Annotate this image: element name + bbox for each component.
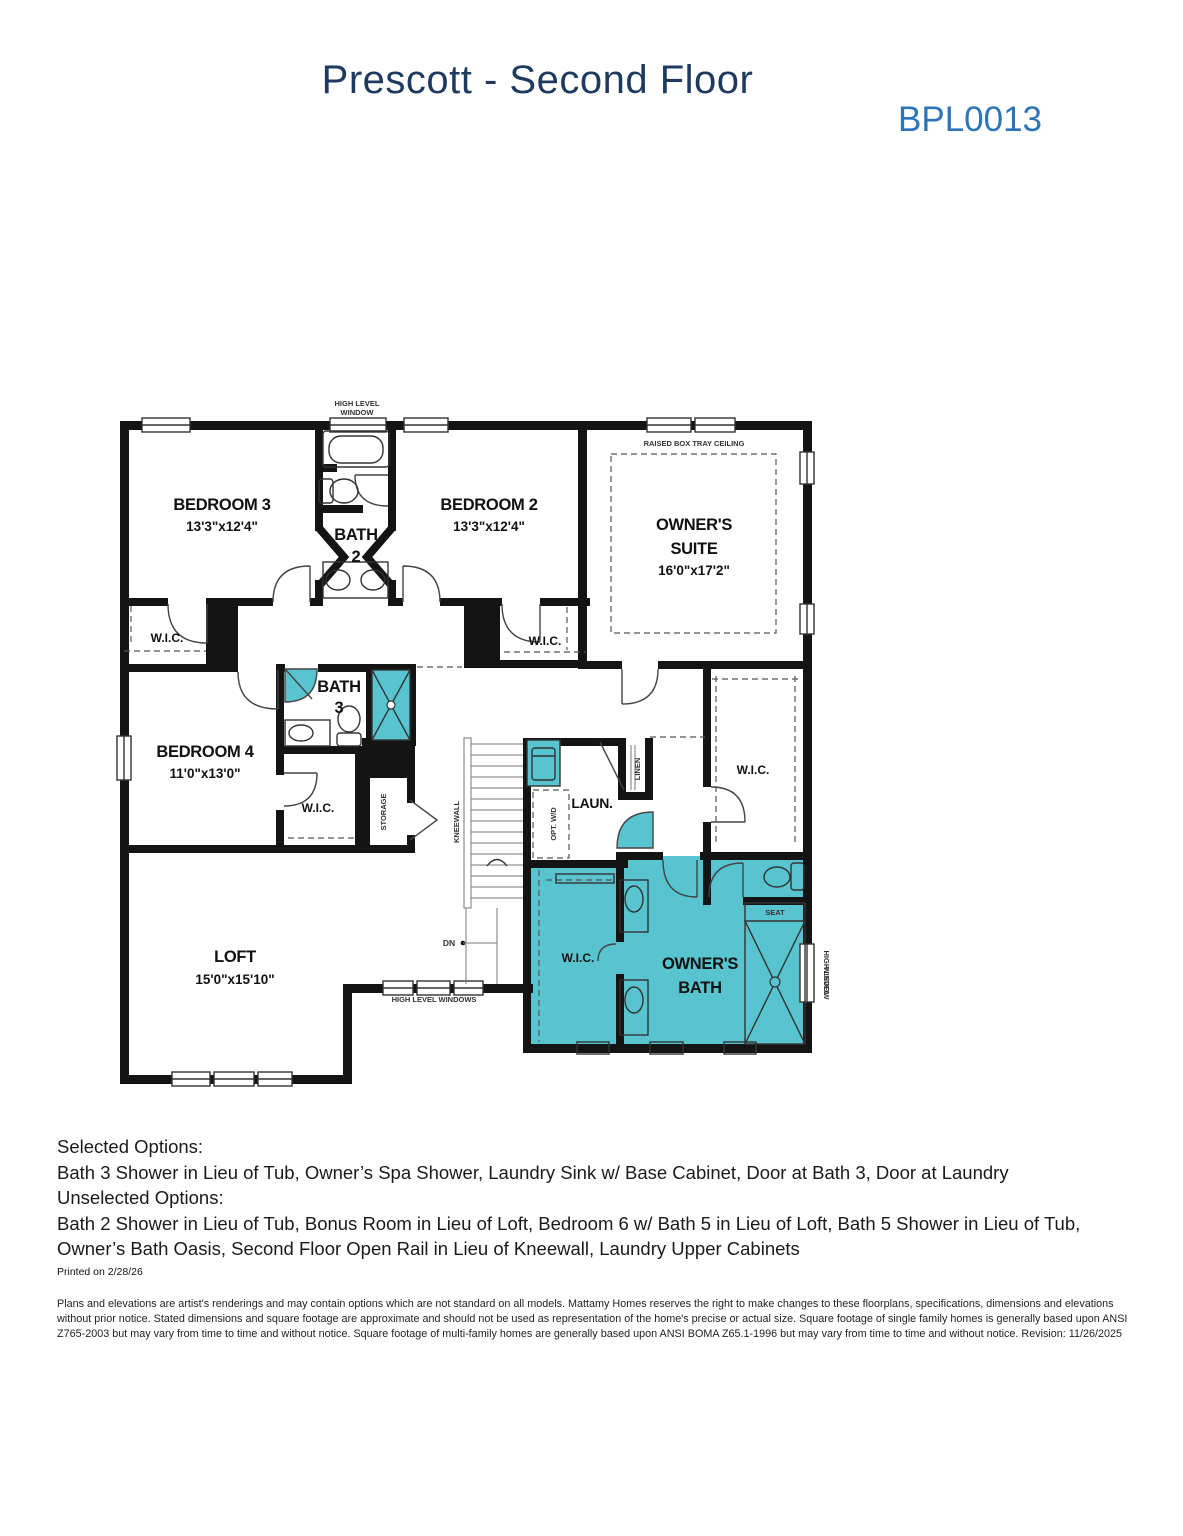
disclaimer-text: Plans and elevations are artist's render…	[57, 1297, 1143, 1341]
laundry-door-selected	[617, 812, 653, 848]
bath3-shower-selected	[372, 670, 410, 740]
bedroom4-door	[238, 670, 278, 709]
bath3-door-selected	[285, 669, 317, 702]
owners-suite-dims: 16'0"x17'2"	[658, 563, 730, 578]
selected-options-list: Bath 3 Shower in Lieu of Tub, Owner’s Sp…	[57, 1160, 1139, 1186]
bath2-tub	[323, 431, 389, 467]
bedroom2-door	[403, 566, 440, 602]
high-level-window-label: HIGH LEVEL	[334, 399, 379, 408]
svg-text:WINDOW: WINDOW	[341, 408, 375, 417]
loft-dims: 15'0"x15'10"	[195, 972, 274, 987]
svg-text:2: 2	[352, 548, 361, 566]
tray-ceiling-label: RAISED BOX TRAY CEILING	[644, 439, 745, 448]
wic-label: W.I.C.	[737, 763, 770, 777]
opt-wd-label: OPT. W/D	[549, 807, 558, 841]
loft-label: LOFT	[214, 948, 256, 966]
bath3-vanity	[285, 720, 330, 746]
dn-label: DN	[443, 938, 455, 948]
owners-bath-label: OWNER'S	[662, 955, 738, 973]
floorplan-page: Prescott - Second Floor BPL0013	[0, 0, 1183, 1536]
owners-suite-label: OWNER'S	[656, 516, 732, 534]
wic-label: W.I.C.	[562, 951, 595, 965]
printed-date: Printed on 2/28/26	[57, 1266, 143, 1278]
bath2-toilet	[319, 479, 358, 503]
unselected-options-heading: Unselected Options:	[57, 1185, 1139, 1211]
storage-door	[410, 800, 437, 840]
laundry-sink-selected	[527, 740, 560, 786]
storage-label: STORAGE	[379, 794, 388, 831]
svg-text:3: 3	[335, 699, 344, 717]
owners-suite-door	[622, 669, 658, 704]
bedroom3-label: BEDROOM 3	[173, 496, 270, 514]
bedroom4-dims: 11'0"x13'0"	[169, 766, 240, 781]
wic-label: W.I.C.	[529, 634, 562, 648]
svg-text:WINDOW: WINDOW	[822, 967, 831, 1001]
stairs	[461, 738, 523, 984]
bath3-label: BATH	[317, 678, 360, 696]
wic-label: W.I.C.	[151, 631, 184, 645]
laundry-label: LAUN.	[571, 795, 612, 811]
bath2-door	[355, 475, 388, 506]
bedroom3-door	[273, 566, 310, 602]
bath2-label: BATH	[334, 526, 377, 544]
svg-text:SUITE: SUITE	[670, 540, 717, 558]
unselected-options-list: Bath 2 Shower in Lieu of Tub, Bonus Room…	[57, 1211, 1139, 1262]
wic-label: W.I.C.	[302, 801, 335, 815]
linen-label: LINEN	[633, 758, 642, 781]
kneewall-label: KNEEWALL	[452, 801, 461, 844]
svg-text:BATH: BATH	[678, 979, 721, 997]
selected-options-heading: Selected Options:	[57, 1134, 1139, 1160]
bedroom2-dims: 13'3"x12'4"	[453, 519, 525, 534]
seat-label: SEAT	[765, 908, 785, 917]
high-level-windows-label: HIGH LEVEL WINDOWS	[392, 995, 477, 1004]
options-section: Selected Options: Bath 3 Shower in Lieu …	[57, 1134, 1139, 1262]
bedroom2-label: BEDROOM 2	[440, 496, 537, 514]
floorplan-drawing: BEDROOM 3 13'3"x12'4" BEDROOM 2 13'3"x12…	[0, 0, 1183, 1160]
bedroom4-label: BEDROOM 4	[156, 743, 254, 761]
bedroom3-dims: 13'3"x12'4"	[186, 519, 258, 534]
